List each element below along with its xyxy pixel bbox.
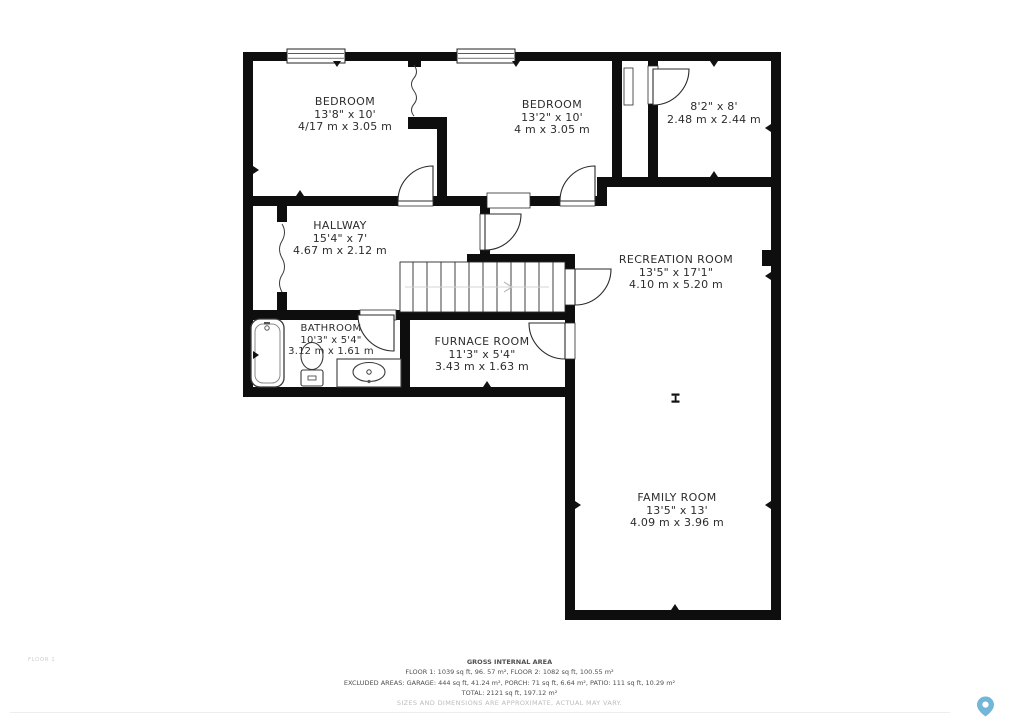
wall-furnace-right-top: [565, 315, 575, 323]
wall-bed-bottom-mid2: [530, 196, 560, 206]
window-icon: [457, 49, 515, 63]
staircase: [400, 262, 565, 312]
footer-total-area: TOTAL: 2121 sq ft, 197.12 m²: [0, 688, 1019, 698]
room-label-bathroom: BATHROOM 10'3" x 5'4" 3.12 m x 1.61 m: [288, 323, 374, 358]
wall-hall-closet-bottom: [277, 292, 287, 312]
room-label-hallway: HALLWAY 15'4" x 7' 4.67 m x 2.12 m: [293, 220, 387, 258]
wall-rec-left-lower: [565, 305, 575, 315]
wall-landing-stub-bottom: [480, 250, 490, 258]
sink-vanity-icon: [337, 359, 401, 387]
floor-plan-page: BEDROOM 13'8" x 10' 4/17 m x 3.05 m BEDR…: [0, 0, 1019, 720]
wall-family-left: [565, 397, 575, 610]
door-arc-recreation: [575, 269, 611, 305]
footer-title: GROSS INTERNAL AREA: [0, 657, 1019, 667]
footer-floor-areas: FLOOR 1: 1039 sq ft, 96. 57 m², FLOOR 2:…: [0, 667, 1019, 677]
door-arc-bedroom2: [560, 166, 595, 201]
room-label-recreation: RECREATION ROOM 13'5" x 17'1" 4.10 m x 5…: [619, 254, 733, 292]
wall-bed-divider: [437, 117, 447, 206]
wall-family-bottom: [565, 610, 781, 620]
wall-jog: [597, 177, 607, 206]
bottom-divider: [10, 712, 950, 713]
wall-rec-top: [607, 177, 771, 187]
room-label-bedroom-2: BEDROOM 13'2" x 10' 4 m x 3.05 m: [514, 99, 590, 137]
door-arc-bedroom1: [398, 166, 433, 201]
footer-disclaimer: SIZES AND DIMENSIONS ARE APPROXIMATE, AC…: [0, 698, 1019, 708]
footer-excluded-areas: EXCLUDED AREAS: GARAGE: 444 sq ft, 41.24…: [0, 678, 1019, 688]
window-icon: [287, 49, 345, 63]
room-label-furnace: FURNACE ROOM 11'3" x 5'4" 3.43 m x 1.63 …: [435, 336, 530, 374]
wall-room82-left-upper: [648, 52, 658, 66]
room-label-family: FAMILY ROOM 13'5" x 13' 4.09 m x 3.96 m: [630, 492, 724, 530]
room-label-8x8: 8'2" x 8' 2.48 m x 2.44 m: [667, 101, 761, 126]
wall-notch: [762, 250, 771, 266]
wall-room82-left-lower: [648, 104, 658, 187]
wall-rec-left-upper: [565, 254, 575, 269]
room-label-bedroom-1: BEDROOM 13'8" x 10' 4/17 m x 3.05 m: [298, 96, 392, 134]
wall-right: [771, 52, 781, 620]
wall-bed-divider-jog: [408, 117, 447, 129]
door-arc-furnace: [529, 323, 565, 359]
door-leaf: [624, 68, 633, 105]
wall-hall-closet-top: [277, 206, 287, 222]
wall-bed2-right: [612, 52, 622, 177]
gross-internal-area-footer: GROSS INTERNAL AREA FLOOR 1: 1039 sq ft,…: [0, 657, 1019, 708]
wall-bed-bottom-left: [243, 196, 400, 206]
door-arc-landing: [485, 214, 521, 250]
wall-furnace-right-bottom: [565, 359, 575, 397]
door-arc-room82: [653, 69, 689, 105]
column-marker-icon: [672, 394, 680, 403]
